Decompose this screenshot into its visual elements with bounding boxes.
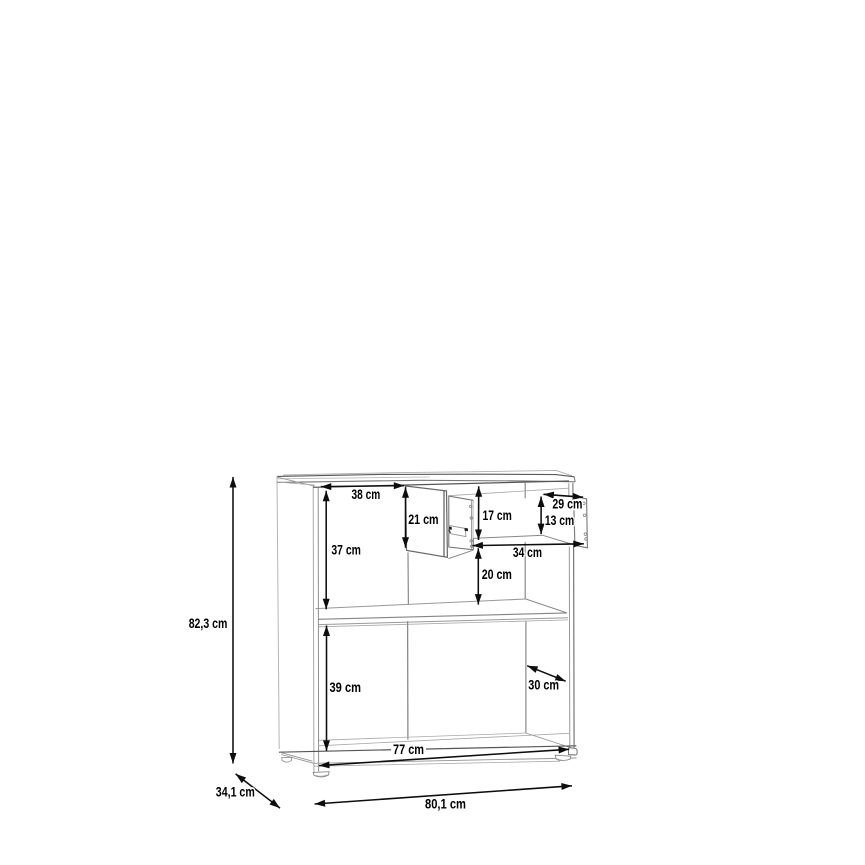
svg-text:37 cm: 37 cm [331,543,361,558]
svg-text:21 cm: 21 cm [408,512,438,527]
svg-text:34 cm: 34 cm [513,545,542,560]
svg-text:29 cm: 29 cm [552,497,582,512]
svg-text:77 cm: 77 cm [393,742,424,757]
svg-text:80,1 cm: 80,1 cm [425,796,466,811]
svg-text:17 cm: 17 cm [483,508,512,523]
svg-text:13 cm: 13 cm [545,513,574,528]
svg-text:34,1 cm: 34,1 cm [216,784,255,799]
svg-text:20 cm: 20 cm [482,567,512,582]
svg-text:82,3 cm: 82,3 cm [189,616,228,631]
svg-text:30 cm: 30 cm [528,677,559,692]
svg-text:39 cm: 39 cm [330,680,362,695]
svg-text:38 cm: 38 cm [352,487,381,502]
